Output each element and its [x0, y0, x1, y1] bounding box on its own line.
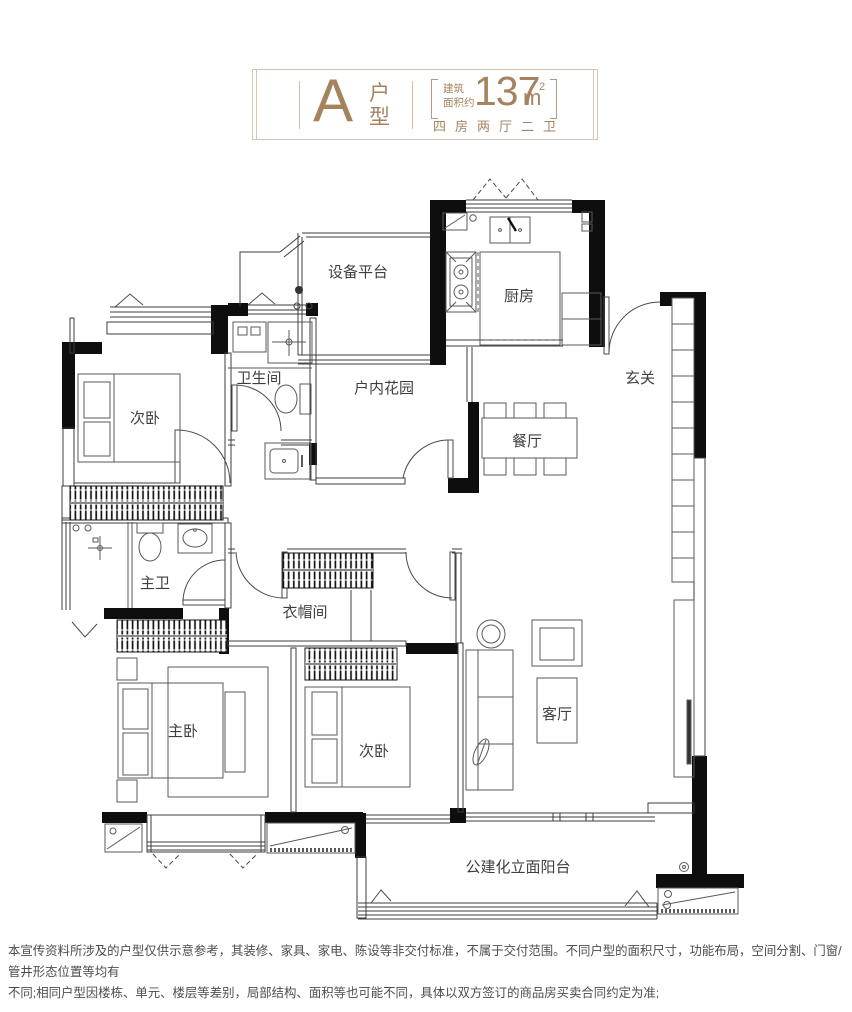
floor-plan-page: A 户型 建筑面积约 137 m 2 四房两厅二卫 — [0, 0, 852, 1012]
room-label-equipment-platform: 设备平台 — [328, 264, 388, 281]
foyer-cabinet — [672, 298, 694, 582]
room-label-bedroom-upper: 次卧 — [130, 410, 160, 427]
room-label-bathroom: 卫生间 — [236, 370, 281, 387]
disclaimer-line1: 本宣传资料所涉及的户型仅供示意参考，其装修、家具、家电、陈设等非交付标准，不属于… — [8, 944, 842, 979]
walls — [62, 200, 744, 888]
disclaimer: 本宣传资料所涉及的户型仅供示意参考，其装修、家具、家电、陈设等非交付标准，不属于… — [8, 941, 848, 1004]
wardrobes — [70, 486, 397, 680]
room-label-indoor-garden: 户内花园 — [354, 380, 414, 397]
room-labels: 设备平台 厨房 玄关 次卧 卫生间 户内花园 餐厅 主卫 衣帽间 主卧 次卧 客… — [130, 264, 655, 876]
room-label-dining: 餐厅 — [512, 433, 542, 450]
room-label-foyer: 玄关 — [625, 370, 655, 387]
window-vent-marks — [72, 179, 649, 907]
room-label-kitchen: 厨房 — [504, 288, 534, 305]
room-label-living: 客厅 — [542, 706, 572, 723]
kitchen-fixtures — [443, 212, 601, 345]
room-label-bedroom-lower: 次卧 — [359, 743, 389, 760]
room-label-master-bath: 主卫 — [140, 575, 170, 592]
living-furniture — [466, 600, 694, 790]
disclaimer-line2: 不同;相同户型因楼栋、单元、楼层等差别，局部结构、面积等也可能不同，具体以双方签… — [8, 986, 659, 1000]
room-label-cloakroom: 衣帽间 — [282, 604, 327, 621]
ac-units — [105, 823, 738, 914]
room-label-master-bedroom: 主卧 — [168, 723, 198, 740]
doors — [175, 297, 660, 605]
room-label-balcony: 公建化立面阳台 — [465, 859, 570, 876]
bathroom-fixtures — [73, 322, 312, 608]
floor-plan-drawing: 设备平台 厨房 玄关 次卧 卫生间 户内花园 餐厅 主卫 衣帽间 主卧 次卧 客… — [0, 0, 852, 1012]
bed-lower — [305, 687, 410, 787]
